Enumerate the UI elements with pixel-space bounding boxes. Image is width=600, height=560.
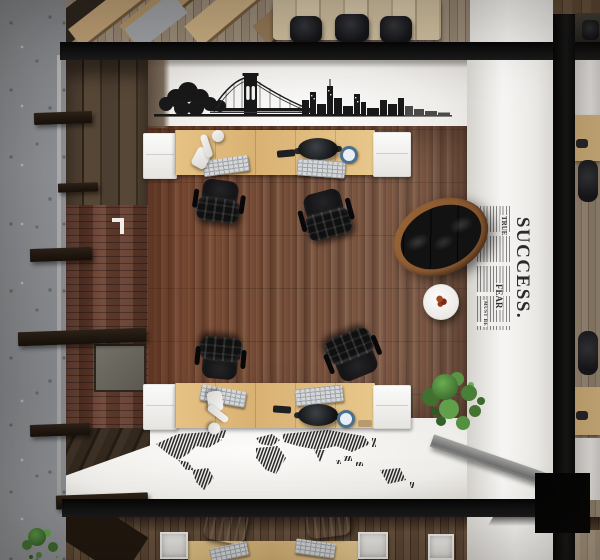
top-desk-cabinet-right xyxy=(373,132,411,177)
wall-shelf xyxy=(30,423,90,437)
storage-box xyxy=(160,532,188,559)
right-office-monitor xyxy=(576,411,588,420)
blue-mug xyxy=(340,146,358,164)
conference-chair xyxy=(380,16,412,42)
bottom-neighbour-office xyxy=(66,517,600,560)
storage-box xyxy=(358,532,388,559)
steel-beam-top xyxy=(60,42,600,60)
right-office-chair xyxy=(578,160,598,202)
right-office-chair xyxy=(578,331,598,375)
bridge-skyline-decal xyxy=(152,64,457,126)
left-wall-brick xyxy=(66,205,148,432)
wall-hook xyxy=(112,218,125,235)
round-side-table xyxy=(423,284,459,320)
upper-white-floor xyxy=(470,0,554,42)
plant-foliage xyxy=(432,374,458,400)
steel-beam-junction xyxy=(535,473,590,533)
right-office-monitor xyxy=(576,139,588,148)
bottom-desk-cabinet-left xyxy=(143,384,177,430)
wall-shelf xyxy=(58,182,98,192)
steel-beam-bottom xyxy=(62,499,555,517)
phone-remote xyxy=(273,405,291,413)
upper-conference-room xyxy=(66,0,600,42)
right-office-wall xyxy=(575,57,600,115)
wood-tray xyxy=(358,420,372,427)
bottom-desk-cabinet-right xyxy=(373,385,411,429)
desk-lamp xyxy=(194,132,230,172)
left-wall-gray-panel xyxy=(94,344,146,392)
poster-word-true: TRUE xyxy=(500,215,507,236)
wall-shelf xyxy=(34,111,92,125)
poster-headline: SUCCESS. xyxy=(513,206,532,330)
potted-plant xyxy=(408,356,488,430)
bottom-office-chair xyxy=(304,517,352,540)
bottom-shelf-diagonal xyxy=(66,517,148,560)
top-right-chair xyxy=(582,20,599,40)
right-office-desk xyxy=(575,115,600,161)
office-chair xyxy=(192,177,245,225)
diagonal-floor-patch xyxy=(124,0,187,42)
conference-chair xyxy=(335,14,369,42)
poster-word-fear: FEAR xyxy=(494,283,503,310)
keyboard xyxy=(296,158,345,178)
storage-box xyxy=(428,534,454,560)
potted-plant-small xyxy=(12,518,70,560)
office-chair xyxy=(195,335,245,381)
poster-word-must-be: MUST BE xyxy=(482,300,487,327)
office-topdown-render: SUCCESS. TRUE FEAR MUST BE xyxy=(0,0,600,560)
top-desk-cabinet-left xyxy=(143,133,177,179)
flower-decoration xyxy=(434,294,448,308)
blue-mug xyxy=(337,410,355,428)
monitor-top-view xyxy=(298,138,338,160)
wall-shelf xyxy=(30,247,92,262)
plant-foliage xyxy=(28,528,46,546)
monitor-top-view xyxy=(298,404,338,426)
conference-chair xyxy=(290,16,322,42)
barcode-world-map-decal xyxy=(148,430,430,494)
